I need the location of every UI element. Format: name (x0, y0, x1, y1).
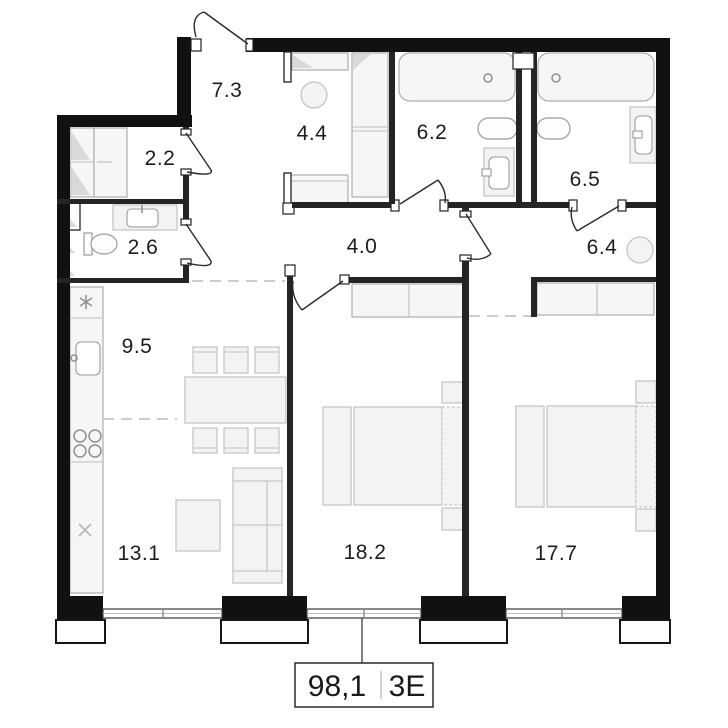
wall (57, 199, 189, 204)
door-post (618, 200, 626, 211)
dining-set (185, 347, 286, 453)
door-post (246, 39, 253, 51)
room-label-kitchen: 9.5 (122, 335, 153, 358)
bathtub (538, 53, 654, 101)
door-post (191, 39, 201, 51)
nightstand (442, 382, 463, 403)
door-post (440, 200, 448, 211)
wall-right (656, 38, 670, 621)
chair (255, 428, 279, 453)
bathroom-2-6-fixtures (58, 203, 177, 276)
door-post (569, 200, 577, 211)
stool (627, 237, 653, 263)
room-label-dressing: 4.4 (297, 122, 328, 145)
wall (389, 52, 395, 204)
wall (287, 275, 293, 596)
bed-bench (516, 406, 544, 507)
wall (183, 264, 189, 283)
entrance-door (194, 12, 248, 44)
bedroom-door (293, 281, 343, 310)
wall-bottom (622, 596, 670, 621)
bathroom-shared-door (400, 180, 445, 204)
low-shelf (290, 175, 348, 203)
wall-bottom (57, 596, 103, 621)
nightstand (636, 509, 656, 531)
floor-plan: 7.3 2.2 2.6 4.4 6.2 6.5 6.4 4.0 9.5 13.1… (0, 0, 728, 728)
bathroom-master-door (571, 206, 619, 231)
wall-stub (531, 282, 537, 317)
wall-left (57, 115, 70, 621)
wall-stub (284, 52, 291, 82)
closet (537, 283, 654, 315)
wall-entry-side (177, 37, 191, 115)
summary: 98,1 3E (295, 618, 433, 707)
master-hall-6-4-furniture (627, 237, 653, 263)
window-ledge (420, 620, 507, 643)
window-ledge (620, 620, 670, 643)
chair (224, 428, 248, 453)
chair (193, 347, 217, 373)
window-ledge (221, 620, 308, 643)
toilet-bowl (91, 234, 117, 254)
wall (292, 202, 392, 208)
room-label-bathroom-master: 6.5 (570, 168, 601, 191)
shaft-box (513, 53, 534, 69)
sink-basin (489, 157, 509, 189)
bed-bench (323, 407, 351, 505)
wall-shaft (531, 52, 537, 208)
room-label-bathroom-shared: 6.2 (417, 121, 448, 144)
wall (531, 277, 656, 282)
room-label-living: 13.1 (118, 542, 161, 565)
wall-stub (284, 173, 291, 205)
wall (343, 277, 469, 283)
room-label-bedroom: 18.2 (344, 541, 387, 564)
bathroom-6-5-fixtures (537, 53, 656, 163)
living-13-1-furniture (176, 468, 282, 583)
wall-bottom (421, 596, 506, 621)
nightstand (442, 508, 463, 530)
chair (193, 428, 217, 453)
wall (462, 258, 469, 596)
wardrobe-column (352, 53, 388, 197)
wall (183, 173, 189, 221)
windows (56, 609, 670, 643)
nightstand (636, 381, 656, 403)
faucet-icon (633, 131, 642, 138)
room-label-bathroom-guest: 2.6 (128, 236, 159, 259)
bedroom-17-7-furniture (516, 283, 656, 531)
bed-pillows (636, 406, 656, 507)
door-post (285, 265, 295, 276)
dining-table (185, 377, 286, 423)
chair (255, 347, 279, 373)
total-area-value: 98,1 (308, 670, 366, 703)
wardrobe-2-2-furniture (70, 128, 127, 197)
room-label-master-hall: 6.4 (587, 236, 618, 259)
bedroom-18-2-furniture (323, 284, 463, 530)
room-label-bedroom-master: 17.7 (535, 542, 578, 565)
wall (57, 278, 189, 283)
room-label-wardrobe: 2.2 (145, 147, 176, 170)
towel-radiator (478, 118, 517, 139)
door-post (460, 211, 471, 217)
wall-shaft (516, 52, 522, 208)
towel-radiator (537, 118, 570, 139)
bathtub (399, 53, 515, 101)
wall-top-left (57, 115, 192, 127)
kitchen-9-5-furniture (70, 287, 103, 593)
room-label-corridor: 4.0 (347, 235, 378, 258)
wall-top (246, 38, 670, 52)
master-suite-door (466, 214, 491, 259)
stool (301, 82, 327, 108)
chair (224, 347, 248, 373)
wall (626, 202, 656, 208)
window-ledge (56, 620, 105, 643)
bed-pillows (442, 407, 463, 505)
kitchen-sink (76, 342, 100, 375)
floor-plan-page: 7.3 2.2 2.6 4.4 6.2 6.5 6.4 4.0 9.5 13.1… (0, 0, 728, 728)
bed (547, 406, 636, 507)
armchair (176, 500, 220, 551)
wardrobe-door (186, 133, 211, 174)
room-label-entry-hall: 7.3 (212, 79, 243, 102)
wall-bottom (222, 596, 307, 621)
layout-code-value: 3E (389, 670, 426, 703)
faucet-icon (482, 169, 491, 176)
closet (352, 284, 463, 317)
bed (354, 407, 442, 505)
